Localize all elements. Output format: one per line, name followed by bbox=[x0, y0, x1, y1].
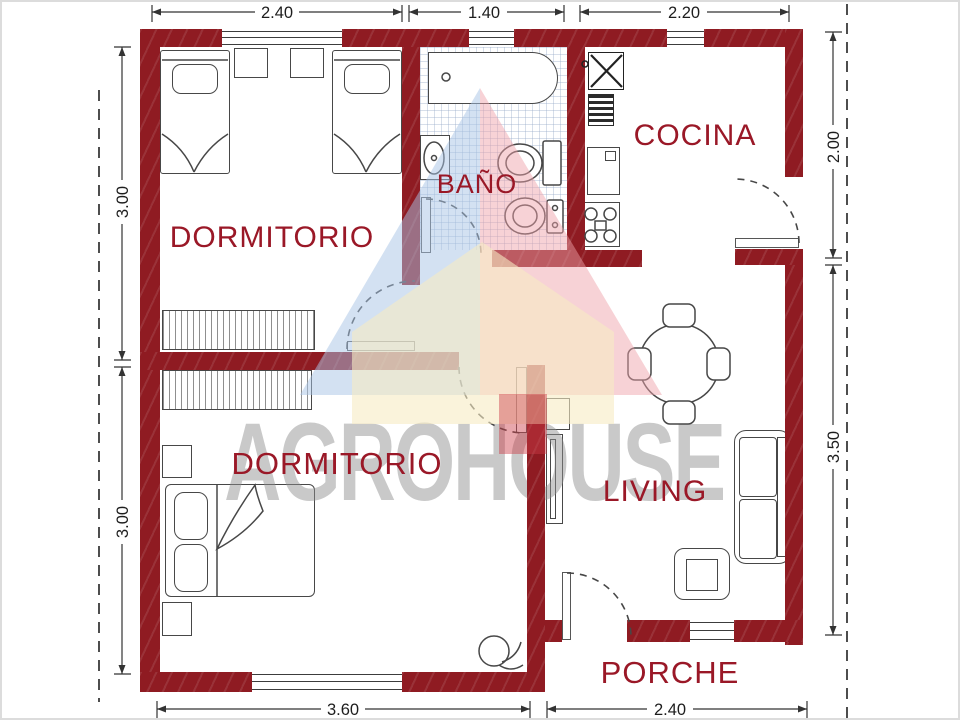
door-leaf-dormitorio-top bbox=[347, 341, 415, 351]
dining-table bbox=[639, 324, 719, 404]
label-cocina: COCINA bbox=[615, 119, 775, 153]
wall-bath-kitchen bbox=[567, 47, 585, 252]
nightstand bbox=[290, 48, 324, 78]
wall-dorm1-bath bbox=[402, 47, 420, 285]
window-kitchen bbox=[667, 31, 704, 45]
label-dormitorio-bottom: DORMITORIO bbox=[227, 446, 447, 482]
dining-chair bbox=[628, 348, 651, 380]
wall-living-south bbox=[627, 620, 690, 642]
window-dormitorio-bottom bbox=[252, 674, 402, 690]
pillow bbox=[174, 544, 208, 592]
plant-leaf bbox=[499, 642, 523, 669]
dining-chair bbox=[663, 401, 695, 424]
nightstand bbox=[162, 602, 192, 636]
dish-rack bbox=[588, 94, 614, 126]
wardrobe bbox=[162, 370, 312, 410]
door-leaf-kitchen-exterior bbox=[735, 238, 799, 248]
dim-top-2: 1.40 bbox=[468, 4, 500, 22]
label-bano: BAÑO bbox=[417, 169, 537, 200]
tv-cabinet-inner bbox=[550, 439, 556, 519]
dim-left-1: 3.00 bbox=[114, 186, 132, 218]
shelf bbox=[546, 398, 570, 430]
dim-bottom-1: 3.60 bbox=[327, 701, 359, 719]
pillow bbox=[174, 492, 208, 540]
nightstand bbox=[162, 445, 192, 478]
logo-house-body bbox=[352, 242, 614, 424]
dim-right-1: 2.00 bbox=[825, 131, 843, 163]
wall-top bbox=[342, 29, 469, 47]
wall-bath-south bbox=[492, 250, 642, 267]
sofa-cushion bbox=[739, 437, 777, 497]
label-dormitorio-top: DORMITORIO bbox=[162, 221, 382, 255]
laundry-sink bbox=[588, 52, 624, 90]
window-living bbox=[690, 622, 734, 640]
dining-chair bbox=[663, 304, 695, 327]
wall-kitchen-south-stub bbox=[735, 249, 803, 265]
door-leaf-bathroom bbox=[421, 197, 431, 253]
wall-bottom bbox=[402, 672, 545, 692]
wall-middle bbox=[140, 352, 459, 370]
nightstand bbox=[234, 48, 268, 78]
pillow bbox=[344, 64, 390, 94]
armchair-seat bbox=[686, 559, 718, 591]
wall-dorm2-living bbox=[527, 365, 545, 692]
sofa-cushion bbox=[739, 499, 777, 559]
dim-bottom-2: 2.40 bbox=[654, 701, 686, 719]
wardrobe bbox=[162, 310, 315, 350]
label-living: LIVING bbox=[585, 475, 725, 509]
label-porche: PORCHE bbox=[590, 655, 750, 691]
window-dormitorio-top bbox=[222, 31, 342, 45]
dim-right-2: 3.50 bbox=[825, 431, 843, 463]
plant bbox=[479, 636, 509, 666]
stove bbox=[580, 202, 620, 247]
pillow bbox=[172, 64, 218, 94]
dining-chair bbox=[707, 348, 730, 380]
dim-left-2: 3.00 bbox=[114, 506, 132, 538]
door-arc-dormitorio-top bbox=[347, 281, 415, 349]
door-arc-entry bbox=[567, 573, 631, 637]
dim-top-3: 2.20 bbox=[668, 4, 700, 22]
wall-right-living bbox=[785, 249, 803, 645]
bathtub bbox=[428, 52, 558, 104]
window-bathroom bbox=[469, 31, 514, 45]
door-arc-kitchen-exterior bbox=[735, 179, 799, 243]
wall-right-kitchen bbox=[785, 29, 803, 177]
door-leaf-dormitorio-bottom bbox=[516, 367, 527, 433]
wall-living-south bbox=[734, 620, 803, 642]
floor-plan: AGROHOUSE bbox=[0, 0, 960, 720]
wall-top bbox=[514, 29, 667, 47]
wall-bottom bbox=[140, 672, 252, 692]
dim-top-1: 2.40 bbox=[261, 4, 293, 22]
door-leaf-entry bbox=[562, 572, 571, 640]
